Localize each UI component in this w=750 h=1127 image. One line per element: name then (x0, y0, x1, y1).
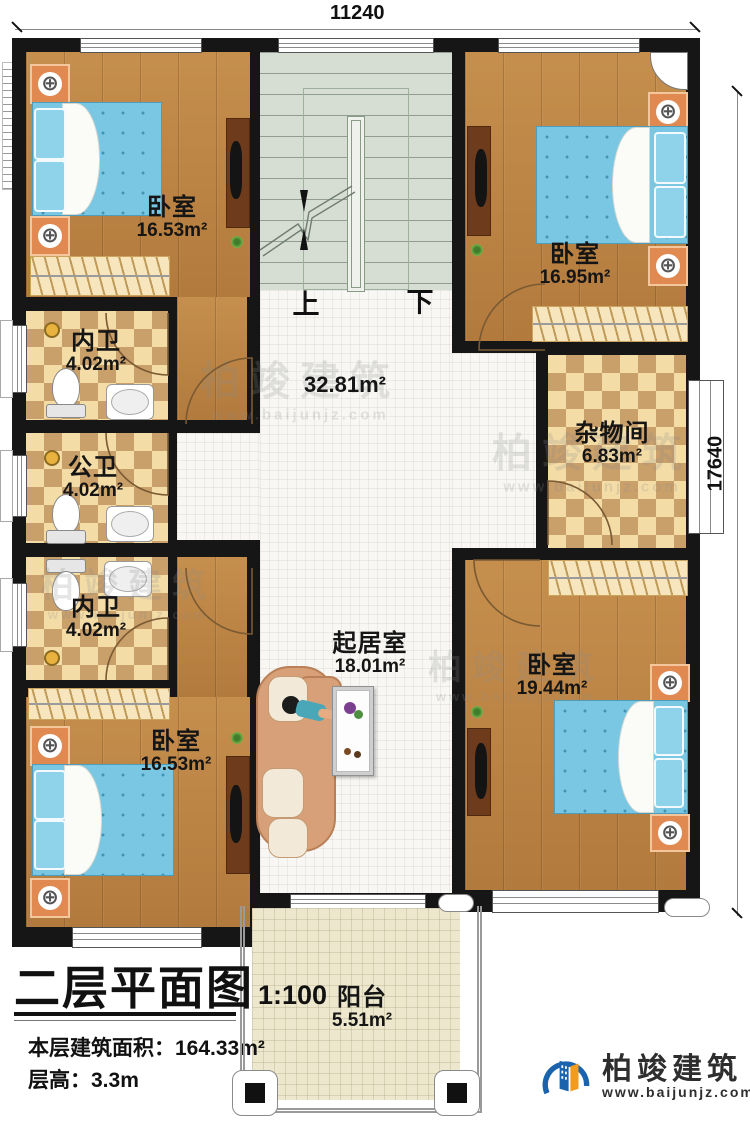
nightstand: ⊕ (648, 246, 688, 286)
bed-pillow (34, 820, 66, 870)
room-label-bath-bottom: 内卫 4.02m² (66, 595, 126, 641)
room-label-bedroom-bottom-left: 卧室 16.53m² (141, 729, 212, 775)
sink (106, 506, 154, 542)
room-label-balcony: 阳台 5.51m² (332, 985, 392, 1031)
room-name: 卧室 (527, 653, 577, 679)
lamp-icon: ⊕ (658, 821, 682, 845)
lamp-icon: ⊕ (656, 254, 680, 278)
plant-icon (471, 706, 483, 718)
watermark-url: www.baijunjz.com (200, 407, 400, 424)
room-name: 卧室 (151, 729, 201, 755)
window-bottom-left-bedroom (72, 927, 202, 948)
lamp-icon: ⊕ (38, 224, 62, 248)
bed-pillow (34, 160, 66, 212)
nightstand: ⊕ (650, 664, 690, 702)
balcony-column (232, 1070, 278, 1116)
floor-plan-canvas: 11240 17640 上 下 ⊕ ⊕ (0, 0, 750, 1127)
room-area: 32.81m² (304, 373, 386, 397)
toilet-tank (46, 404, 86, 418)
window-left-bath-top (12, 325, 27, 393)
room-area: 18.01m² (335, 657, 406, 678)
wardrobe (532, 306, 688, 342)
stair-down-label: 下 (407, 281, 434, 320)
room-area: 16.95m² (540, 268, 611, 289)
room-name: 卧室 (550, 242, 600, 268)
balcony-column (434, 1070, 480, 1116)
nightstand: ⊕ (30, 64, 70, 104)
room-area: 4.02m² (66, 621, 126, 642)
table-item (354, 751, 361, 758)
brand-logo-icon (538, 1050, 592, 1104)
wardrobe (28, 688, 170, 720)
room-label-bath-top: 内卫 4.02m² (66, 329, 126, 375)
right-dimension-line (737, 92, 738, 916)
room-name: 阳台 (337, 985, 387, 1011)
right-dimension-label: 17640 (704, 436, 727, 492)
sofa-cushion (268, 818, 308, 858)
table-item (344, 748, 351, 755)
top-dimension-line (15, 29, 697, 30)
room-label-bath-mid: 公卫 4.02m² (63, 455, 123, 501)
plant-icon (231, 732, 243, 744)
lamp-icon: ⊕ (658, 671, 682, 695)
room-name: 起居室 (333, 631, 408, 657)
brand-name: 柏竣建筑 (602, 1054, 742, 1086)
window-left-bath-mid (12, 455, 27, 517)
toilet-tank (46, 530, 86, 544)
nightstand: ⊕ (30, 216, 70, 256)
nightstand: ⊕ (30, 878, 70, 918)
title-underline-thin (14, 1020, 236, 1021)
sink (106, 384, 154, 420)
room-label-hall: 32.81m² (304, 373, 386, 397)
stair-center-rail (347, 116, 365, 292)
window-sill (0, 450, 13, 522)
monitor-icon (475, 149, 487, 207)
plan-title: 二层平面图 (14, 952, 254, 1018)
title-block: 二层平面图 1:100 (14, 952, 327, 1018)
lamp-icon: ⊕ (38, 886, 62, 910)
room-area: 16.53m² (137, 221, 208, 242)
wardrobe (30, 256, 170, 296)
nightstand: ⊕ (650, 814, 690, 852)
floor-height-text: 层高：3.3m (28, 1064, 139, 1094)
window-left-bath-bottom (12, 583, 27, 647)
ceiling-light-icon (44, 450, 60, 466)
floor-hall-extension-left (177, 433, 260, 540)
window-top-stair (278, 38, 434, 53)
room-area: 4.02m² (66, 355, 126, 376)
floor-area-text: 本层建筑面积：164.33m² (28, 1032, 265, 1062)
sink-basin (111, 511, 149, 537)
room-area: 5.51m² (332, 1011, 392, 1032)
lamp-icon: ⊕ (656, 100, 680, 124)
brand-url: www.baijunjz.com (602, 1085, 750, 1100)
wardrobe (548, 560, 688, 596)
window-sill (0, 578, 13, 652)
dimension-tick (11, 21, 22, 32)
desk (467, 126, 491, 236)
room-name: 内卫 (71, 595, 121, 621)
window-top-right (498, 38, 640, 53)
building-pier (664, 898, 710, 917)
flower-decoration (354, 710, 363, 719)
monitor-icon (230, 785, 242, 843)
bed-pillow (34, 770, 66, 820)
room-label-bedroom-bottom-right: 卧室 19.44m² (517, 653, 588, 699)
plant-icon (471, 244, 483, 256)
bed-pillow (654, 758, 684, 808)
stair-up-label: 上 (293, 283, 320, 322)
monitor-icon (475, 743, 487, 799)
room-label-bedroom-top-right: 卧室 16.95m² (540, 242, 611, 288)
monitor-icon (230, 141, 242, 199)
room-name: 公卫 (68, 455, 118, 481)
window-sill (0, 320, 13, 398)
window-bottom-right-bedroom (492, 890, 659, 913)
window-top-left (80, 38, 202, 53)
bed-pillow (34, 108, 66, 160)
bed-pillow (654, 186, 686, 238)
room-label-storage: 杂物间 6.83m² (575, 421, 650, 467)
room-label-bedroom-top-left: 卧室 16.53m² (137, 195, 208, 241)
plan-scale: 1:100 (258, 980, 327, 1011)
desk (467, 728, 491, 816)
lamp-icon: ⊕ (38, 734, 62, 758)
desk (226, 756, 250, 874)
balcony-pier (438, 894, 474, 912)
ceiling-light-icon (44, 650, 60, 666)
bed-pillow (654, 706, 684, 756)
coffee-table (332, 686, 374, 776)
plant-icon (231, 236, 243, 248)
watermark-url: www.baijunjz.com (492, 479, 692, 496)
nightstand: ⊕ (30, 726, 70, 766)
lamp-icon: ⊕ (38, 72, 62, 96)
room-name: 内卫 (71, 329, 121, 355)
sofa-cushion (262, 768, 304, 818)
room-name: 卧室 (147, 195, 197, 221)
ceiling-light-icon (44, 322, 60, 338)
sink-basin (111, 389, 149, 415)
room-area: 16.53m² (141, 755, 212, 776)
brand-logo: 柏竣建筑 www.baijunjz.com (538, 1050, 750, 1104)
room-area: 4.02m² (63, 481, 123, 502)
top-dimension-label: 11240 (330, 2, 385, 25)
desk (226, 118, 250, 228)
room-label-living: 起居室 18.01m² (333, 631, 408, 677)
room-area: 19.44m² (517, 679, 588, 700)
dimension-tick (689, 21, 700, 32)
room-name: 杂物间 (575, 421, 650, 447)
bed-pillow (654, 132, 686, 184)
room-area: 6.83m² (582, 447, 642, 468)
